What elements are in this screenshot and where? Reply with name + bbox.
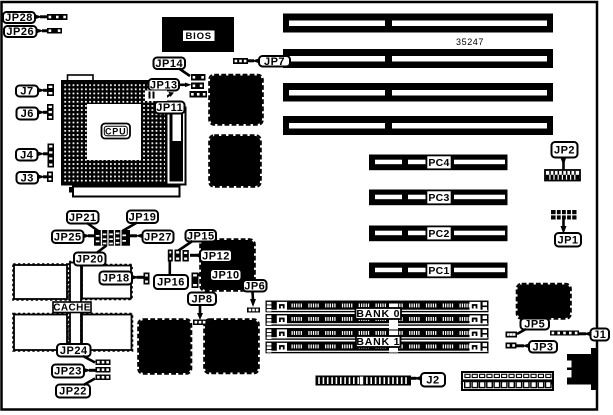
svg-text:JP16: JP16 — [157, 277, 185, 289]
svg-text:BANK 1: BANK 1 — [356, 336, 400, 348]
svg-text:JP11: JP11 — [156, 102, 183, 114]
svg-text:PC3: PC3 — [428, 192, 449, 204]
svg-text:BIOS: BIOS — [185, 31, 211, 42]
svg-text:PC1: PC1 — [428, 265, 449, 277]
svg-text:J2: J2 — [426, 374, 439, 386]
svg-text:CPU: CPU — [105, 127, 126, 137]
svg-text:JP20: JP20 — [76, 254, 104, 266]
svg-text:JP2: JP2 — [554, 144, 575, 156]
svg-text:J3: J3 — [21, 172, 34, 184]
svg-text:JP1: JP1 — [557, 234, 578, 246]
svg-text:JP12: JP12 — [202, 250, 230, 262]
svg-text:35247: 35247 — [456, 37, 484, 47]
svg-text:JP25: JP25 — [54, 231, 82, 243]
svg-text:JP23: JP23 — [54, 366, 82, 378]
svg-text:JP3: JP3 — [532, 341, 553, 353]
svg-text:JP21: JP21 — [69, 212, 97, 224]
svg-text:JP18: JP18 — [102, 273, 130, 285]
svg-text:BANK 0: BANK 0 — [356, 308, 400, 320]
svg-text:JP14: JP14 — [155, 58, 183, 70]
svg-text:JP5: JP5 — [524, 319, 545, 331]
svg-text:JP22: JP22 — [59, 386, 87, 398]
svg-text:JP24: JP24 — [60, 345, 88, 357]
svg-text:JP26: JP26 — [6, 26, 34, 38]
svg-text:JP19: JP19 — [129, 211, 157, 223]
svg-text:J7: J7 — [20, 86, 33, 98]
svg-text:JP15: JP15 — [187, 230, 215, 242]
svg-text:PC4: PC4 — [428, 157, 449, 169]
svg-text:JP6: JP6 — [244, 280, 265, 292]
svg-text:JP7: JP7 — [264, 56, 285, 68]
svg-text:CACHE: CACHE — [53, 303, 91, 314]
svg-text:JP28: JP28 — [5, 12, 33, 24]
svg-text:J6: J6 — [21, 108, 34, 120]
svg-text:JP27: JP27 — [144, 231, 172, 243]
svg-text:JP8: JP8 — [191, 293, 212, 305]
svg-text:JP10: JP10 — [212, 270, 240, 282]
svg-text:J4: J4 — [20, 149, 34, 161]
svg-text:J1: J1 — [593, 329, 606, 341]
svg-text:PC2: PC2 — [428, 228, 449, 240]
svg-text:JP13: JP13 — [150, 79, 178, 91]
